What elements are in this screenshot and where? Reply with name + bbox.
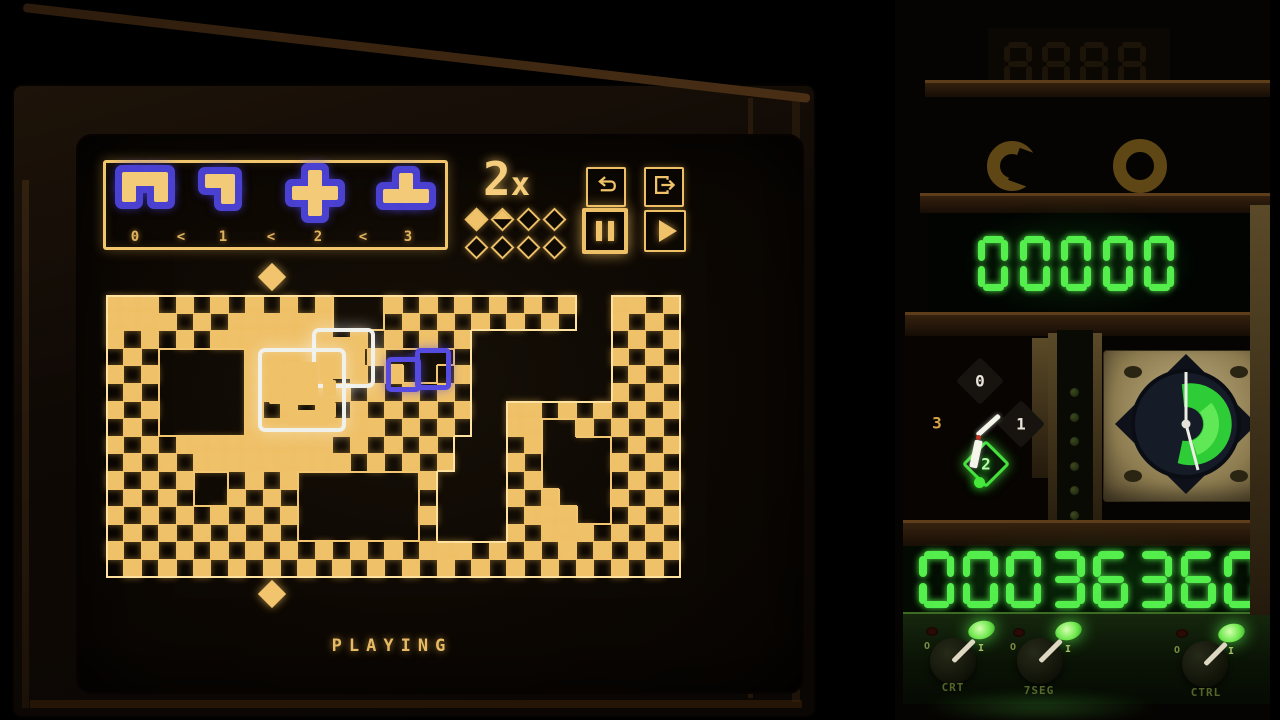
off-led — [926, 627, 938, 636]
off-led — [1176, 629, 1188, 638]
on-marker: I — [978, 643, 984, 654]
rack-side-wall — [1250, 205, 1270, 615]
switches: OICRTOI7SEGOICTRL — [0, 0, 1280, 720]
on-marker: I — [1228, 646, 1234, 657]
rack-edge — [1270, 0, 1280, 720]
floor-reflection — [920, 690, 1160, 720]
on-led — [1216, 621, 1247, 645]
off-led — [1013, 628, 1025, 637]
scene: 0<1<2<3 2x — [0, 0, 1280, 720]
off-marker: O — [1010, 642, 1016, 653]
off-marker: O — [924, 641, 930, 652]
off-marker: O — [1174, 645, 1180, 656]
switch-label: CTRL — [1191, 686, 1222, 699]
control-rack: 0123 OICRTOI7SEGOICTRL — [0, 0, 1280, 720]
on-marker: I — [1065, 644, 1071, 655]
switch-label: CRT — [942, 681, 965, 694]
